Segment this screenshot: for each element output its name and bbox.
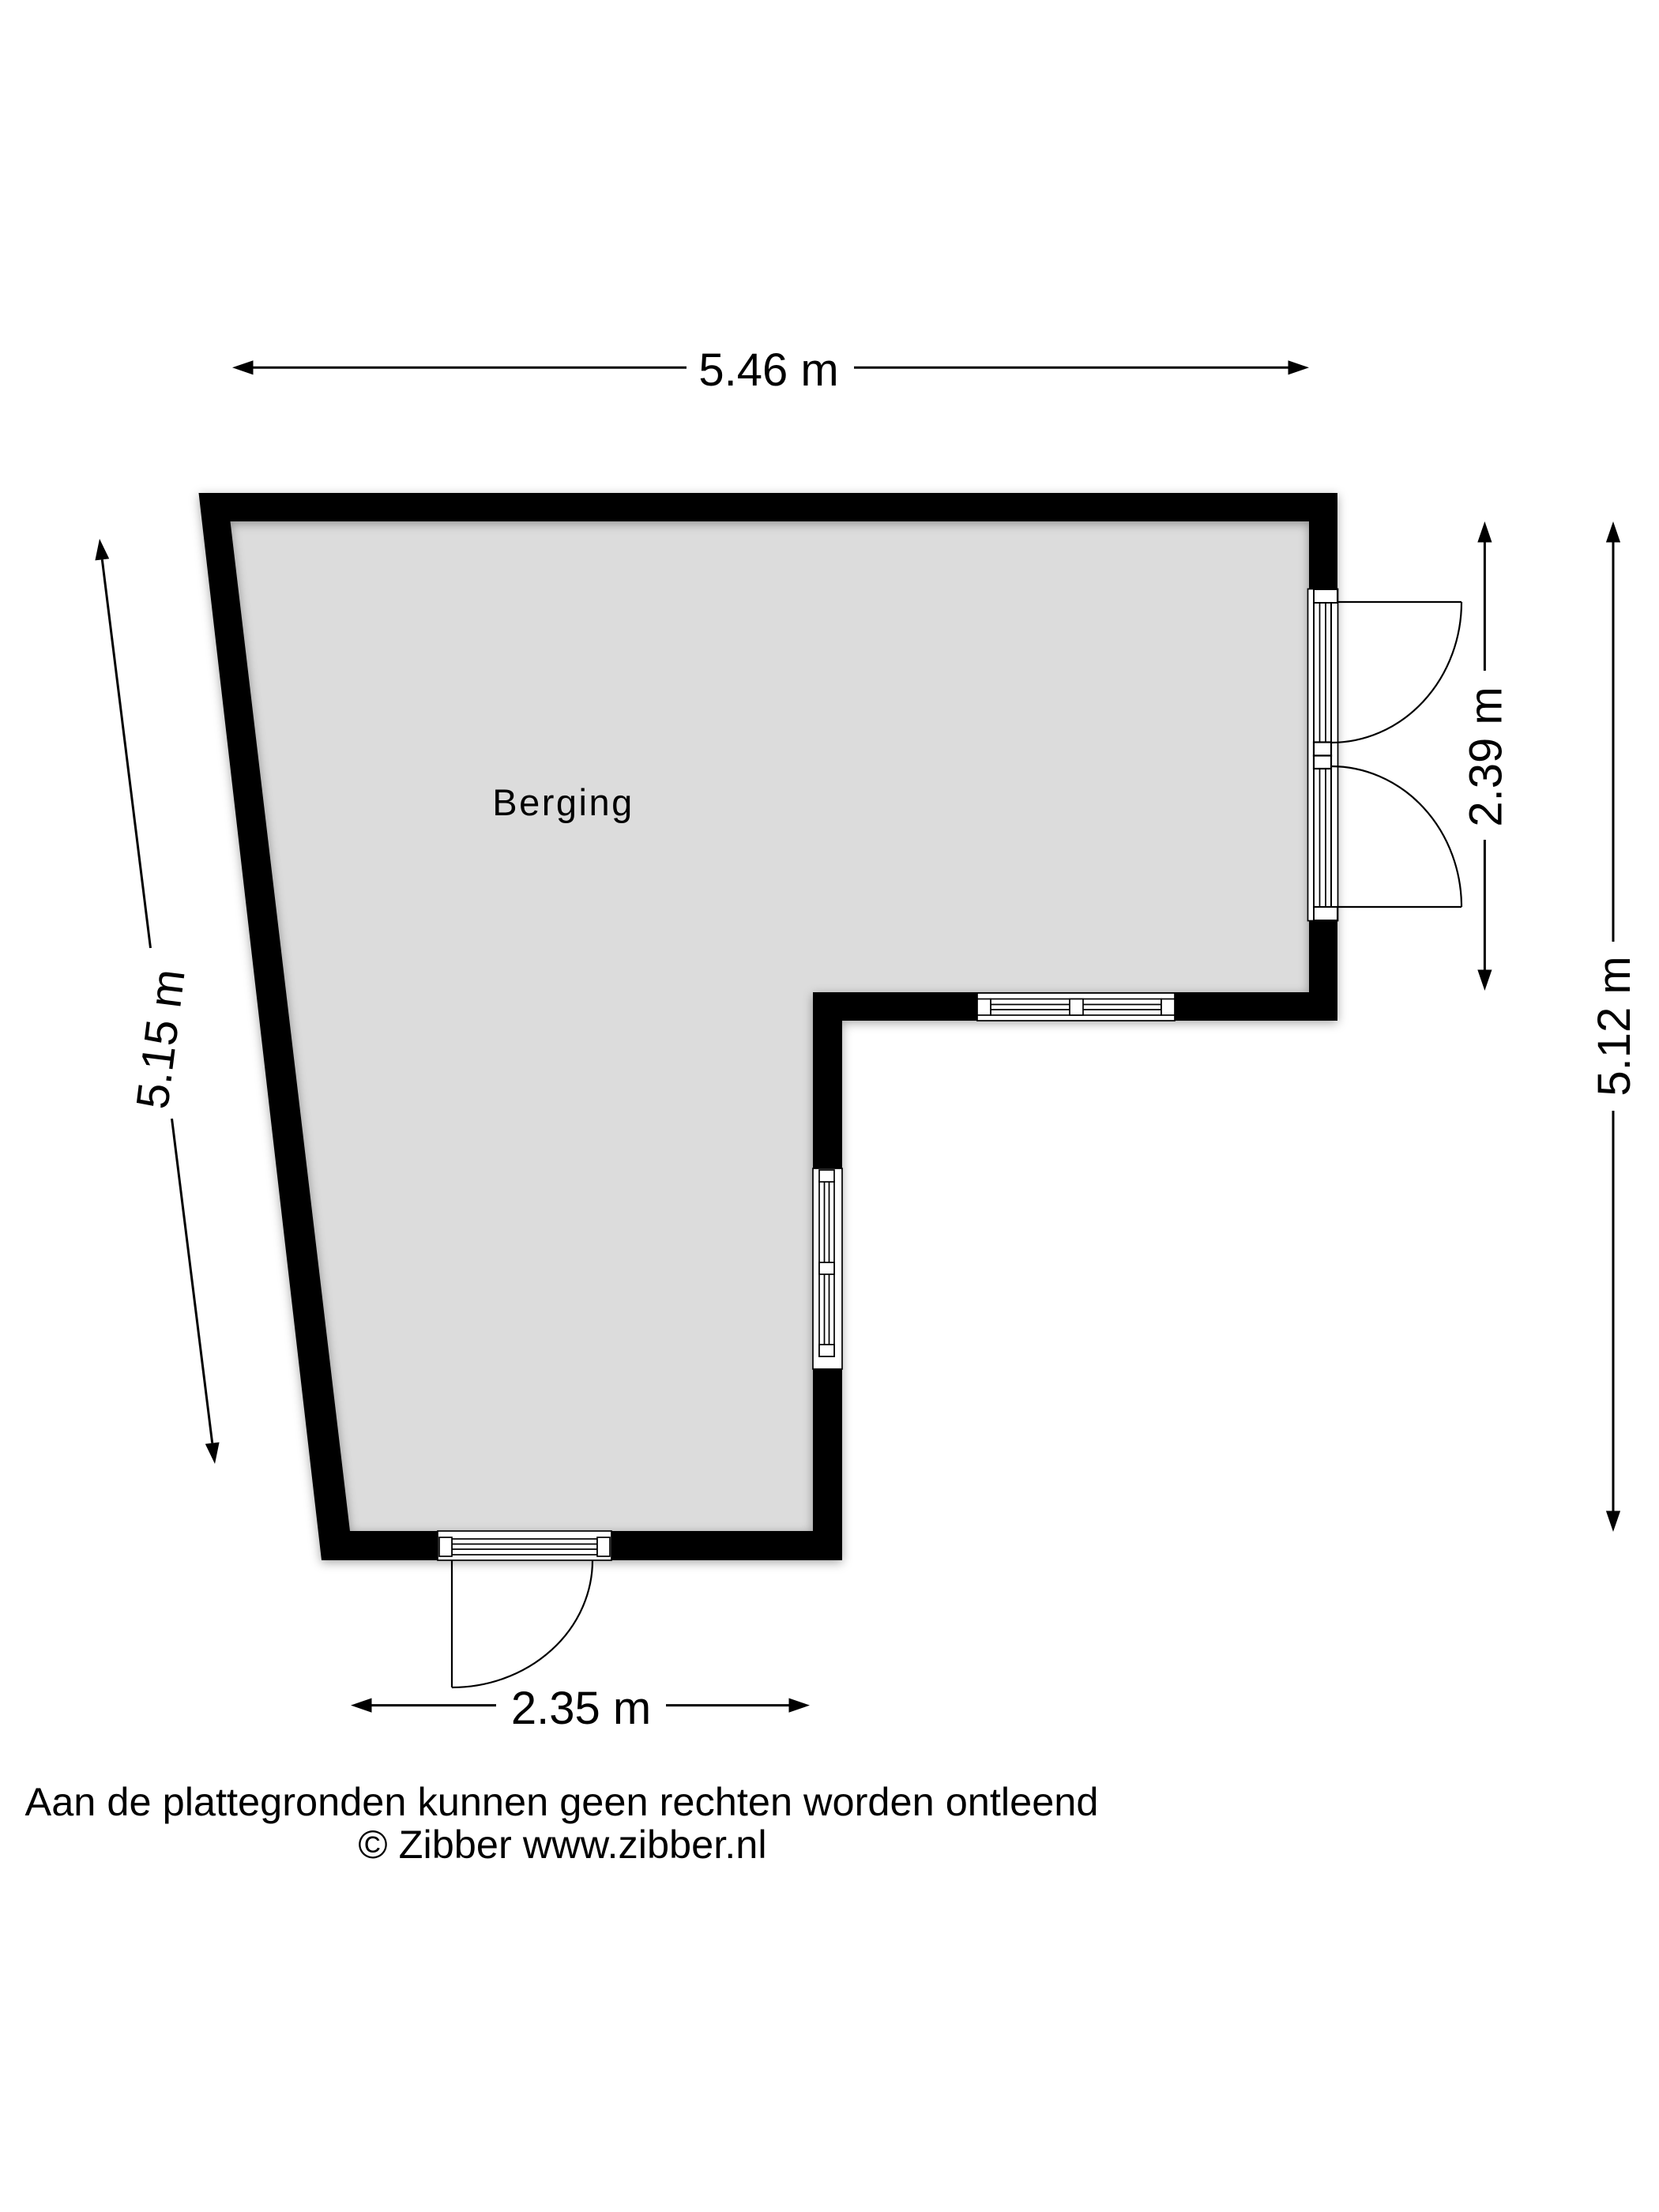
svg-text:5.12 m: 5.12 m — [1589, 956, 1640, 1096]
svg-text:2.35 m: 2.35 m — [511, 1683, 651, 1734]
svg-text:Aan de plattegronden kunnen ge: Aan de plattegronden kunnen geen rechten… — [25, 1779, 1099, 1824]
svg-text:2.39 m: 2.39 m — [1460, 687, 1511, 826]
svg-text:5.46 m: 5.46 m — [698, 344, 838, 396]
svg-text:Berging: Berging — [492, 781, 634, 823]
svg-text:© Zibber www.zibber.nl: © Zibber www.zibber.nl — [358, 1822, 766, 1867]
svg-text:5.15 m: 5.15 m — [126, 966, 194, 1112]
